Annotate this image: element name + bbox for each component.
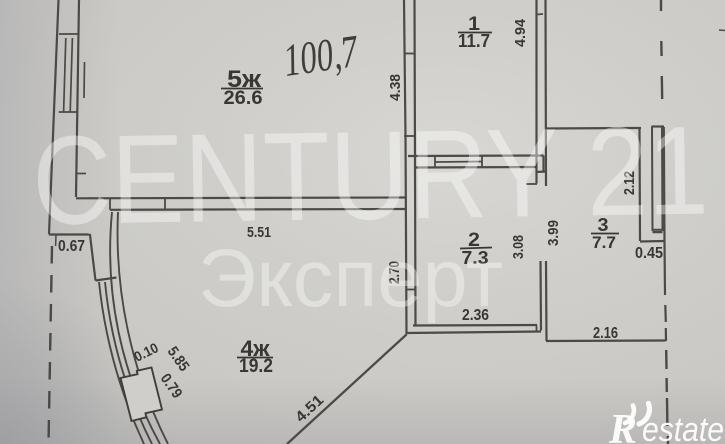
svg-text:100,7: 100,7 — [280, 25, 362, 86]
svg-text:4.38: 4.38 — [387, 74, 404, 101]
svg-text:Эксперт: Эксперт — [198, 233, 503, 324]
svg-text:19.2: 19.2 — [239, 356, 273, 377]
svg-text:4.94: 4.94 — [512, 18, 529, 47]
svg-text:2.16: 2.16 — [593, 325, 618, 342]
svg-text:estate: estate — [642, 411, 724, 444]
svg-text:R: R — [608, 407, 637, 444]
svg-text:11.7: 11.7 — [458, 31, 490, 51]
svg-text:CENTURY 21: CENTURY 21 — [31, 100, 709, 252]
svg-text:0.45: 0.45 — [635, 245, 663, 262]
